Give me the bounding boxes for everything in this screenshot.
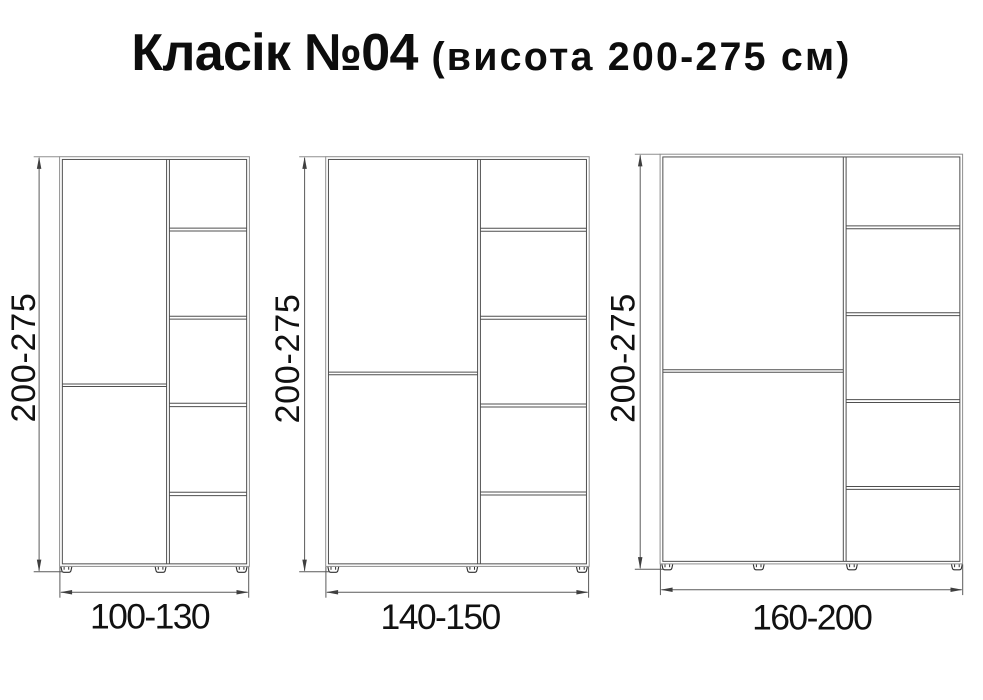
- svg-text:200-275: 200-275: [605, 293, 643, 423]
- svg-text:200-275: 200-275: [269, 293, 307, 423]
- svg-text:100-130: 100-130: [90, 597, 210, 637]
- svg-text:140-150: 140-150: [381, 597, 501, 637]
- svg-text:160-200: 160-200: [752, 597, 872, 637]
- svg-text:200-275: 200-275: [5, 292, 43, 422]
